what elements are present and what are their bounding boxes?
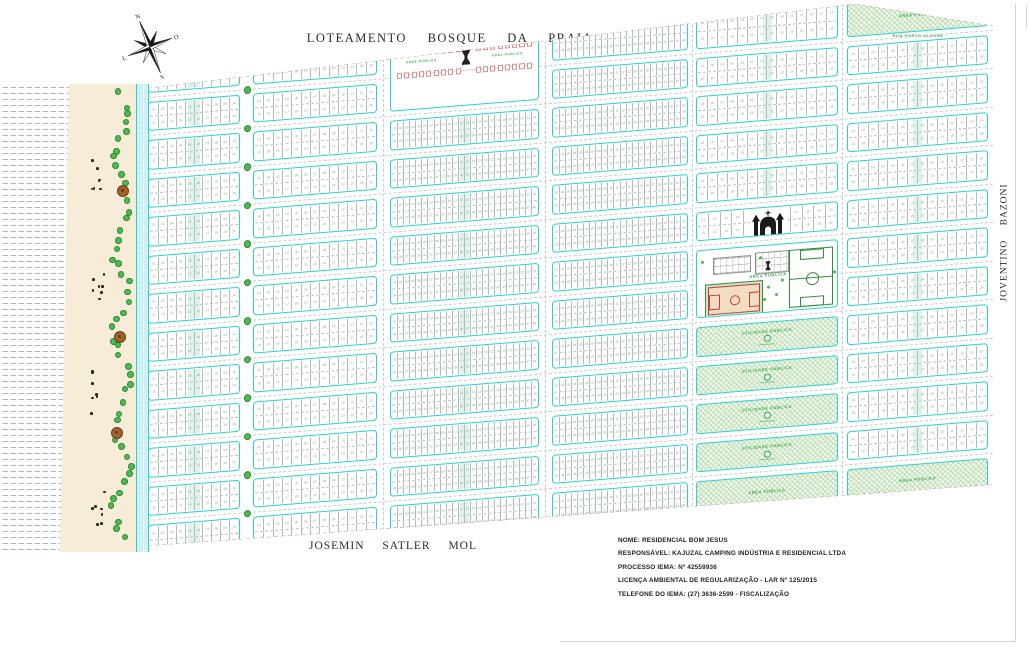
shrub-dot xyxy=(91,371,94,374)
lot: 02 xyxy=(859,239,869,252)
lot: 28 xyxy=(977,89,986,102)
lot: 24 xyxy=(532,188,537,201)
lot: 10 xyxy=(938,386,948,399)
right-street-label: JOVENTINO BAZONI xyxy=(1000,148,1013,338)
lot: 09 xyxy=(221,366,230,379)
lot: 05 xyxy=(292,245,301,258)
plaza-bench xyxy=(476,67,481,73)
lot: 12 xyxy=(357,356,366,369)
boulevard-tree-dot xyxy=(244,394,252,402)
lot: 05 xyxy=(186,485,195,498)
lot: 06 xyxy=(898,236,908,249)
lot: 12 xyxy=(357,317,366,330)
lot: 20 xyxy=(898,364,908,377)
lot: 11 xyxy=(150,540,159,554)
block-lots: 0102030405060708091011121314151617181920… xyxy=(392,419,537,456)
lot: 01 xyxy=(255,171,264,184)
palm-tree-dot xyxy=(123,215,130,222)
lot: 16 xyxy=(859,175,869,188)
lot: 10 xyxy=(230,135,238,148)
lot: 11 xyxy=(150,270,159,283)
lot: 09 xyxy=(221,443,230,456)
block-lots: 0102030405060708091011121314151617181920… xyxy=(392,496,537,535)
lot: 04 xyxy=(283,477,292,490)
lot: 15 xyxy=(698,149,708,162)
lot: 02 xyxy=(159,102,168,115)
lot: 20 xyxy=(898,403,908,416)
lot: 22 xyxy=(330,526,339,540)
lot: 06 xyxy=(195,99,204,112)
lot: 13 xyxy=(168,230,177,243)
lot: 12 xyxy=(807,166,817,179)
lot: 11 xyxy=(150,308,159,321)
lot: 04 xyxy=(879,160,889,173)
street-centerline-v xyxy=(842,3,843,499)
lot: 18 xyxy=(212,496,221,509)
lot: 26 xyxy=(367,214,375,227)
soccer-center-circle xyxy=(806,271,819,285)
lot: 09 xyxy=(330,281,339,294)
block-lots: 0102030405060708091011121314151617181920… xyxy=(554,17,686,58)
lot: 10 xyxy=(230,96,238,109)
lot: 03 xyxy=(718,173,728,186)
lot: 18 xyxy=(292,374,301,387)
lot: 02 xyxy=(264,440,273,453)
lot: 03 xyxy=(168,371,177,384)
lot: 09 xyxy=(330,358,339,371)
lot: 17 xyxy=(283,105,292,118)
lot: 25 xyxy=(948,91,958,104)
lot: 04 xyxy=(177,101,186,114)
lot: 27 xyxy=(967,205,977,218)
lot: 07 xyxy=(908,235,918,248)
lot: 19 xyxy=(221,110,230,123)
lot: 10 xyxy=(339,357,348,370)
lot: 07 xyxy=(311,244,320,257)
lot: 01 xyxy=(849,393,859,406)
lot: 23 xyxy=(339,525,348,539)
lot: 24 xyxy=(938,53,948,66)
lot: 23 xyxy=(928,131,938,144)
lot: 06 xyxy=(302,206,311,219)
lot: 24 xyxy=(787,104,797,117)
lot: 17 xyxy=(869,97,879,110)
lot: 10 xyxy=(339,473,348,486)
lot: 28 xyxy=(827,139,836,152)
lot: 15 xyxy=(186,537,195,551)
lot: 16 xyxy=(195,228,204,241)
boulevard-tree-dot xyxy=(244,86,252,94)
lot: 10 xyxy=(787,129,797,142)
boulevard-tree-dot xyxy=(244,240,252,248)
plaza-bench xyxy=(434,48,439,54)
lot: 25 xyxy=(357,215,366,228)
lot: 20 xyxy=(230,148,238,161)
lot: 18 xyxy=(292,105,301,118)
shrub-dot xyxy=(94,505,97,508)
lot: 07 xyxy=(311,167,320,180)
lot: 27 xyxy=(967,436,977,449)
lot: 18 xyxy=(212,535,221,549)
block-lots: 0102030405060708091011121314151617181920… xyxy=(255,42,375,82)
lot: 16 xyxy=(195,537,204,551)
palm-tree-dot xyxy=(113,316,120,323)
lot: 23 xyxy=(777,181,787,194)
lot: 07 xyxy=(908,427,918,440)
lot: 03 xyxy=(168,448,177,461)
plaza-bench xyxy=(441,69,446,75)
lot: 11 xyxy=(348,395,357,408)
lot: 03 xyxy=(168,525,177,539)
lot: 16 xyxy=(195,71,204,86)
info-licenca: LICENÇA AMBIENTAL DE REGULARIZAÇÃO - LAR… xyxy=(618,577,846,584)
lot: 22 xyxy=(330,410,339,423)
lot: 18 xyxy=(292,143,301,156)
lot: 09 xyxy=(777,168,787,181)
lot: 18 xyxy=(879,135,889,148)
lot: 12 xyxy=(357,510,366,524)
lot: 19 xyxy=(302,296,311,309)
lot: 14 xyxy=(827,5,836,20)
lot: 15 xyxy=(849,176,859,189)
lot: 11 xyxy=(948,232,958,245)
tree-dot xyxy=(781,278,784,281)
lot: 07 xyxy=(908,389,918,402)
lot: 20 xyxy=(311,334,320,347)
lot: 18 xyxy=(879,443,889,456)
lot: 05 xyxy=(186,100,195,113)
lot: 17 xyxy=(203,497,212,510)
lot: 10 xyxy=(339,396,348,409)
lot: 26 xyxy=(367,523,375,537)
lot: 07 xyxy=(908,350,918,363)
lot: 05 xyxy=(292,91,301,104)
lot: 01 xyxy=(150,103,159,116)
block-lots: 0102030405060708091011121314151617181920… xyxy=(698,87,836,123)
lot: 09 xyxy=(221,405,230,418)
lot: 06 xyxy=(748,93,758,106)
lot: 05 xyxy=(292,168,301,181)
plaza-bench xyxy=(404,50,409,56)
lot: 06 xyxy=(898,351,908,364)
large-tree-center xyxy=(118,335,121,338)
lot: 03 xyxy=(721,211,732,224)
lot: 27 xyxy=(967,282,977,295)
lot: 15 xyxy=(264,453,273,466)
lot: 08 xyxy=(320,320,329,333)
lot: 18 xyxy=(292,413,301,426)
lot: 09 xyxy=(221,289,230,302)
lot: 17 xyxy=(283,375,292,388)
lot: 06 xyxy=(898,120,908,133)
shrub-dot xyxy=(96,523,99,526)
block-lots: 0102030405060708091011121314151617181920… xyxy=(849,114,986,150)
lot: 01 xyxy=(255,94,264,107)
large-tree xyxy=(111,427,123,439)
lot: 14 xyxy=(255,146,264,159)
lot: 10 xyxy=(230,327,238,340)
lot: 08 xyxy=(767,130,777,143)
lot: 27 xyxy=(967,166,977,179)
lot: 02 xyxy=(264,50,273,65)
lot: 12 xyxy=(357,279,366,292)
lot: 17 xyxy=(869,136,879,149)
block-lots: 0102030405060708091011121314151617181920… xyxy=(554,253,686,289)
lot: 02 xyxy=(159,410,168,423)
lot: 17 xyxy=(869,367,879,380)
lot: 26 xyxy=(807,23,817,39)
shrub-dot xyxy=(95,393,98,396)
lot: 06 xyxy=(748,170,758,183)
lot: 15 xyxy=(698,188,708,201)
lot: 07 xyxy=(758,54,768,67)
lot: 08 xyxy=(918,426,928,439)
public-area-label: ÁREA PÚBLICA xyxy=(899,10,936,18)
lot: 12 xyxy=(957,192,967,205)
lot: 11 xyxy=(948,155,958,168)
lot: 02 xyxy=(159,371,168,384)
lot: 11 xyxy=(797,90,807,103)
lot: 25 xyxy=(797,64,807,77)
city-block: 0102030405060708091011121314151617181920… xyxy=(552,482,688,524)
block-lots: 0102030405060708091011121314151617181920 xyxy=(150,173,238,206)
lot: 18 xyxy=(292,259,301,272)
block-lots: 0102030405060708091011121314151617181920 xyxy=(150,327,238,360)
lot: 06 xyxy=(195,484,204,497)
lot: 02 xyxy=(264,517,273,531)
lot: 04 xyxy=(283,92,292,105)
city-block: 0102030405060708091011121314151617181920 xyxy=(148,518,240,556)
lot: 21 xyxy=(908,132,918,145)
lot: 08 xyxy=(320,436,329,449)
lot: 07 xyxy=(311,128,320,141)
lot: 15 xyxy=(186,152,195,165)
lot: 12 xyxy=(159,539,168,553)
block-lots: 0102030405060708091011121314151617181920… xyxy=(849,383,986,419)
lot: 13 xyxy=(168,153,177,166)
lot: 23 xyxy=(339,486,348,499)
lot: 19 xyxy=(221,534,230,548)
lot: 18 xyxy=(212,226,221,239)
plaza-label: ÁREA PÚBLICA xyxy=(399,57,444,67)
lot: 09 xyxy=(221,328,230,341)
block-lots: 0102030405060708091011121314151617181920 xyxy=(150,366,238,399)
lot: 08 xyxy=(918,388,928,401)
lot: 25 xyxy=(948,283,958,296)
public-area-measure xyxy=(759,381,775,383)
lot: 12 xyxy=(709,225,720,238)
lot: 13 xyxy=(817,6,827,22)
lot: 28 xyxy=(977,166,986,179)
block-lots: 0102030405060708091011121314151617181920… xyxy=(849,306,986,342)
lot: 02 xyxy=(159,217,168,230)
lot: 02 xyxy=(159,448,168,461)
lot: 06 xyxy=(898,428,908,441)
lot: 12 xyxy=(159,308,168,321)
lot: 22 xyxy=(681,330,686,343)
large-tree xyxy=(114,331,126,343)
pergola-structure xyxy=(755,250,789,275)
lot: 08 xyxy=(918,195,928,208)
lot: 16 xyxy=(274,299,283,312)
lot: 19 xyxy=(888,404,898,417)
lot: 16 xyxy=(859,444,869,457)
palm-tree-dot xyxy=(114,417,121,424)
block-lots: 0102030405060708091011121314151617181920… xyxy=(554,138,686,174)
lot: 21 xyxy=(320,372,329,385)
lot: 15 xyxy=(698,31,708,47)
lot: 15 xyxy=(186,267,195,280)
lot: 02 xyxy=(859,200,869,213)
lot: 15 xyxy=(264,145,273,158)
lot: 24 xyxy=(532,150,537,163)
lot: 17 xyxy=(203,150,212,163)
lot: 44 xyxy=(681,74,686,87)
lot: 19 xyxy=(888,57,898,70)
lot: 06 xyxy=(748,132,758,145)
lot: 21 xyxy=(758,106,768,119)
lot: 27 xyxy=(967,89,977,102)
lot: 20 xyxy=(230,69,238,84)
lot: 16 xyxy=(708,148,718,161)
lot: 21 xyxy=(758,144,768,157)
lot: 17 xyxy=(203,189,212,202)
lot: 26 xyxy=(367,484,375,497)
lot: 18 xyxy=(879,404,889,417)
lot: 20 xyxy=(311,219,320,232)
block-lots: 0102030405060708091011121314151617181920 xyxy=(150,520,238,554)
lot: 44 xyxy=(681,112,686,125)
lot: 15 xyxy=(698,72,708,85)
block-lots: 0102030405060708091011121314151617181920… xyxy=(255,432,375,467)
lot: 19 xyxy=(302,142,311,155)
lot: 16 xyxy=(274,491,283,504)
lot: 05 xyxy=(738,12,748,28)
lot: 21 xyxy=(320,410,329,423)
lot: 05 xyxy=(888,352,898,365)
lot: 15 xyxy=(264,415,273,428)
lot: 20 xyxy=(898,56,908,69)
plaza-bench xyxy=(419,49,424,55)
lot: 03 xyxy=(869,45,879,58)
playground-structure xyxy=(713,255,751,275)
lot: 04 xyxy=(879,199,889,212)
lot: 24 xyxy=(348,59,357,74)
lot: 24 xyxy=(348,331,357,344)
lot: 05 xyxy=(888,121,898,134)
lot: 03 xyxy=(274,93,283,106)
lot: 24 xyxy=(938,361,948,374)
lot: 23 xyxy=(928,92,938,105)
lot: 10 xyxy=(339,165,348,178)
lot: 12 xyxy=(357,163,366,176)
lot: 01 xyxy=(849,239,859,252)
lot: 16 xyxy=(859,213,869,226)
lot: 15 xyxy=(186,72,195,87)
lot: 12 xyxy=(957,308,967,321)
lot: 44 xyxy=(681,459,686,472)
city-block: 0102030405060708091011121314151617181920… xyxy=(253,353,377,392)
lot: 14 xyxy=(827,164,836,177)
lot: 16 xyxy=(859,252,869,265)
lot: 12 xyxy=(807,89,817,102)
lot: 18 xyxy=(212,70,221,85)
lot: 24 xyxy=(938,323,948,336)
lot: 13 xyxy=(367,470,375,483)
lot: 27 xyxy=(817,101,827,114)
lot: 12 xyxy=(159,269,168,282)
lot: 26 xyxy=(957,90,967,103)
lot: 09 xyxy=(777,130,787,143)
lot: 20 xyxy=(748,27,758,43)
lot: 06 xyxy=(302,168,311,181)
lot: 06 xyxy=(195,215,204,228)
lot: 04 xyxy=(879,83,889,96)
lot: 22 xyxy=(681,215,686,228)
plaza-label: ÁREA PÚBLICA xyxy=(485,51,530,61)
lot: 26 xyxy=(957,167,967,180)
lot: 19 xyxy=(888,211,898,224)
lot: 02 xyxy=(264,325,273,338)
compass-s: S xyxy=(159,73,165,81)
lot: 08 xyxy=(320,513,329,527)
lot: 15 xyxy=(264,107,273,120)
lot: 22 xyxy=(681,369,686,382)
plaza-bench xyxy=(441,47,446,53)
lot: 16 xyxy=(195,420,204,433)
lot: 09 xyxy=(330,512,339,526)
lot: 23 xyxy=(339,178,348,191)
lot: 07 xyxy=(311,321,320,334)
subdivision-grid: 0102030405060708091011121314151617181920… xyxy=(148,0,994,560)
lot: 20 xyxy=(230,341,238,354)
lot: 24 xyxy=(532,419,537,432)
lot: 08 xyxy=(212,136,221,149)
lot: 13 xyxy=(168,461,177,474)
lot: 09 xyxy=(330,319,339,332)
tree-dot xyxy=(775,293,778,296)
lot: 12 xyxy=(159,385,168,398)
lot: 22 xyxy=(918,209,928,222)
city-block: 0102030405060708091011121314151617181920… xyxy=(253,276,377,315)
block-lots: 0102030405060708091011121314151617181920… xyxy=(255,316,375,351)
lot: 04 xyxy=(283,208,292,221)
lot: 25 xyxy=(948,437,958,450)
lot: 09 xyxy=(777,53,787,66)
lot: 06 xyxy=(302,322,311,335)
lot: 10 xyxy=(230,520,238,534)
lot: 18 xyxy=(292,451,301,464)
lot: 07 xyxy=(908,81,918,94)
block-lots: 0102030405060708091011121314151617181920… xyxy=(392,111,537,148)
lot: 08 xyxy=(767,169,777,182)
lot: 19 xyxy=(221,187,230,200)
compass-o: O xyxy=(173,33,180,41)
lot: 20 xyxy=(311,488,320,501)
lot: 28 xyxy=(977,204,986,217)
lot: 20 xyxy=(311,257,320,270)
lot: 12 xyxy=(159,231,168,244)
lot: 23 xyxy=(339,370,348,383)
lot: 19 xyxy=(302,258,311,271)
lot: 21 xyxy=(908,248,918,261)
lot: 11 xyxy=(348,510,357,524)
lot: 23 xyxy=(928,169,938,182)
lot: 15 xyxy=(849,445,859,458)
lot: 19 xyxy=(302,104,311,117)
lot: 21 xyxy=(320,141,329,154)
soccer-goal-box xyxy=(800,248,824,260)
